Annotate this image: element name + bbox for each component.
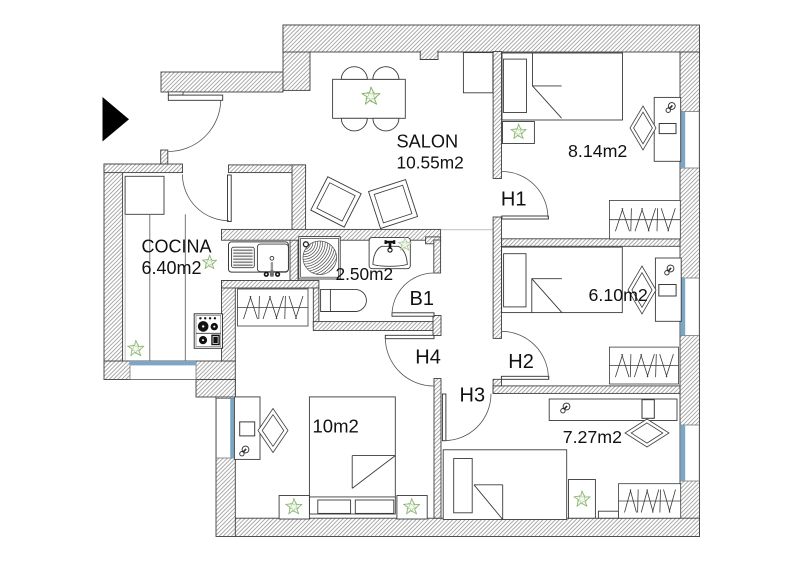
svg-text:H4: H4 — [415, 346, 441, 368]
svg-text:6.40m2: 6.40m2 — [142, 258, 202, 278]
svg-text:H2: H2 — [508, 351, 534, 373]
svg-text:10m2: 10m2 — [313, 416, 359, 437]
svg-text:SALON: SALON — [397, 132, 459, 152]
svg-text:7.27m2: 7.27m2 — [563, 427, 622, 447]
svg-text:H3: H3 — [460, 385, 486, 407]
svg-text:6.10m2: 6.10m2 — [589, 285, 648, 305]
svg-text:COCINA: COCINA — [142, 237, 212, 257]
svg-text:8.14m2: 8.14m2 — [568, 141, 627, 161]
svg-text:10.55m2: 10.55m2 — [397, 153, 464, 173]
svg-text:B1: B1 — [410, 288, 434, 310]
svg-text:2.50m2: 2.50m2 — [336, 264, 394, 284]
svg-text:H1: H1 — [501, 189, 527, 211]
